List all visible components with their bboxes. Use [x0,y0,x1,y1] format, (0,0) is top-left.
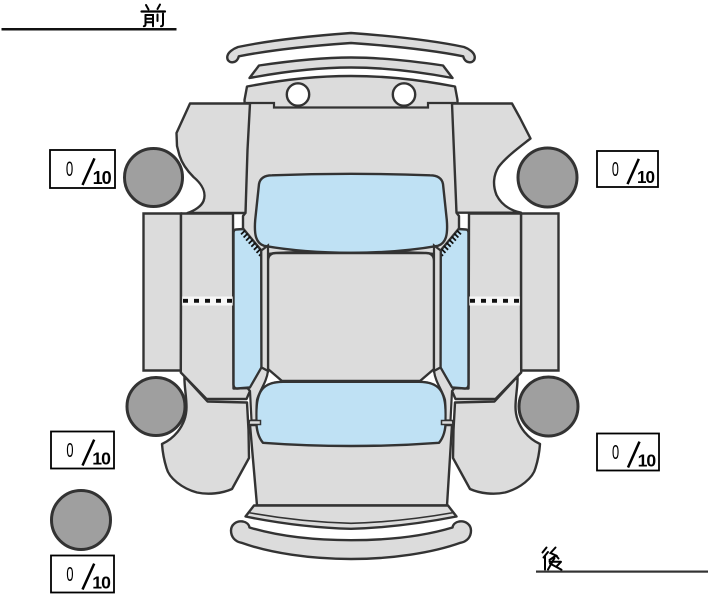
svg-text:10: 10 [92,448,111,468]
svg-text:0: 0 [612,158,619,181]
svg-text:0: 0 [66,157,73,181]
svg-text:0: 0 [612,440,619,464]
svg-text:10: 10 [637,168,655,187]
svg-text:10: 10 [92,572,111,592]
svg-text:0: 0 [66,562,73,586]
svg-text:10: 10 [638,450,657,470]
svg-text:0: 0 [66,438,73,462]
svg-text:10: 10 [93,168,112,188]
